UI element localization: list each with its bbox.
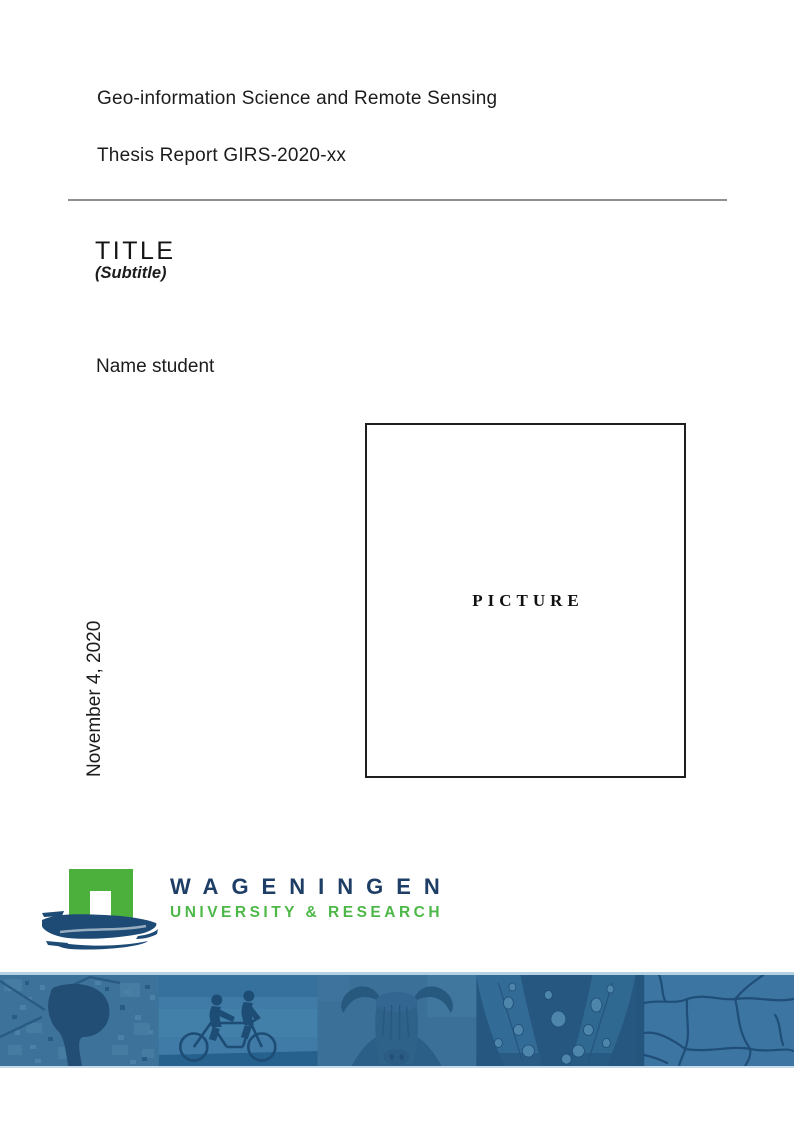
- aerial-map-photo: [0, 975, 159, 1066]
- header-divider-rule: [68, 199, 727, 201]
- tandem-cyclists-photo: [159, 975, 318, 1066]
- footer-photo-banner: [0, 972, 794, 1068]
- thesis-title: TITLE: [95, 237, 176, 266]
- wur-tagline: UNIVERSITY & RESEARCH: [170, 904, 443, 922]
- picture-placeholder-box: PICTURE: [365, 423, 686, 778]
- program-name: Geo-information Science and Remote Sensi…: [97, 88, 497, 110]
- wur-wordmark: WAGENINGEN: [170, 874, 453, 900]
- wur-logo-icon: [40, 856, 165, 956]
- thesis-date: November 4, 2020: [84, 621, 106, 777]
- author-name: Name student: [96, 356, 214, 378]
- cracked-earth-photo: [635, 975, 794, 1066]
- thesis-cover-page: Geo-information Science and Remote Sensi…: [0, 0, 794, 1123]
- report-id: Thesis Report GIRS-2020-xx: [97, 145, 346, 167]
- thesis-subtitle: (Subtitle): [95, 264, 167, 283]
- picture-placeholder-label: PICTURE: [467, 591, 584, 611]
- highland-cow-photo: [318, 975, 477, 1066]
- water-droplets-photo: [476, 975, 635, 1066]
